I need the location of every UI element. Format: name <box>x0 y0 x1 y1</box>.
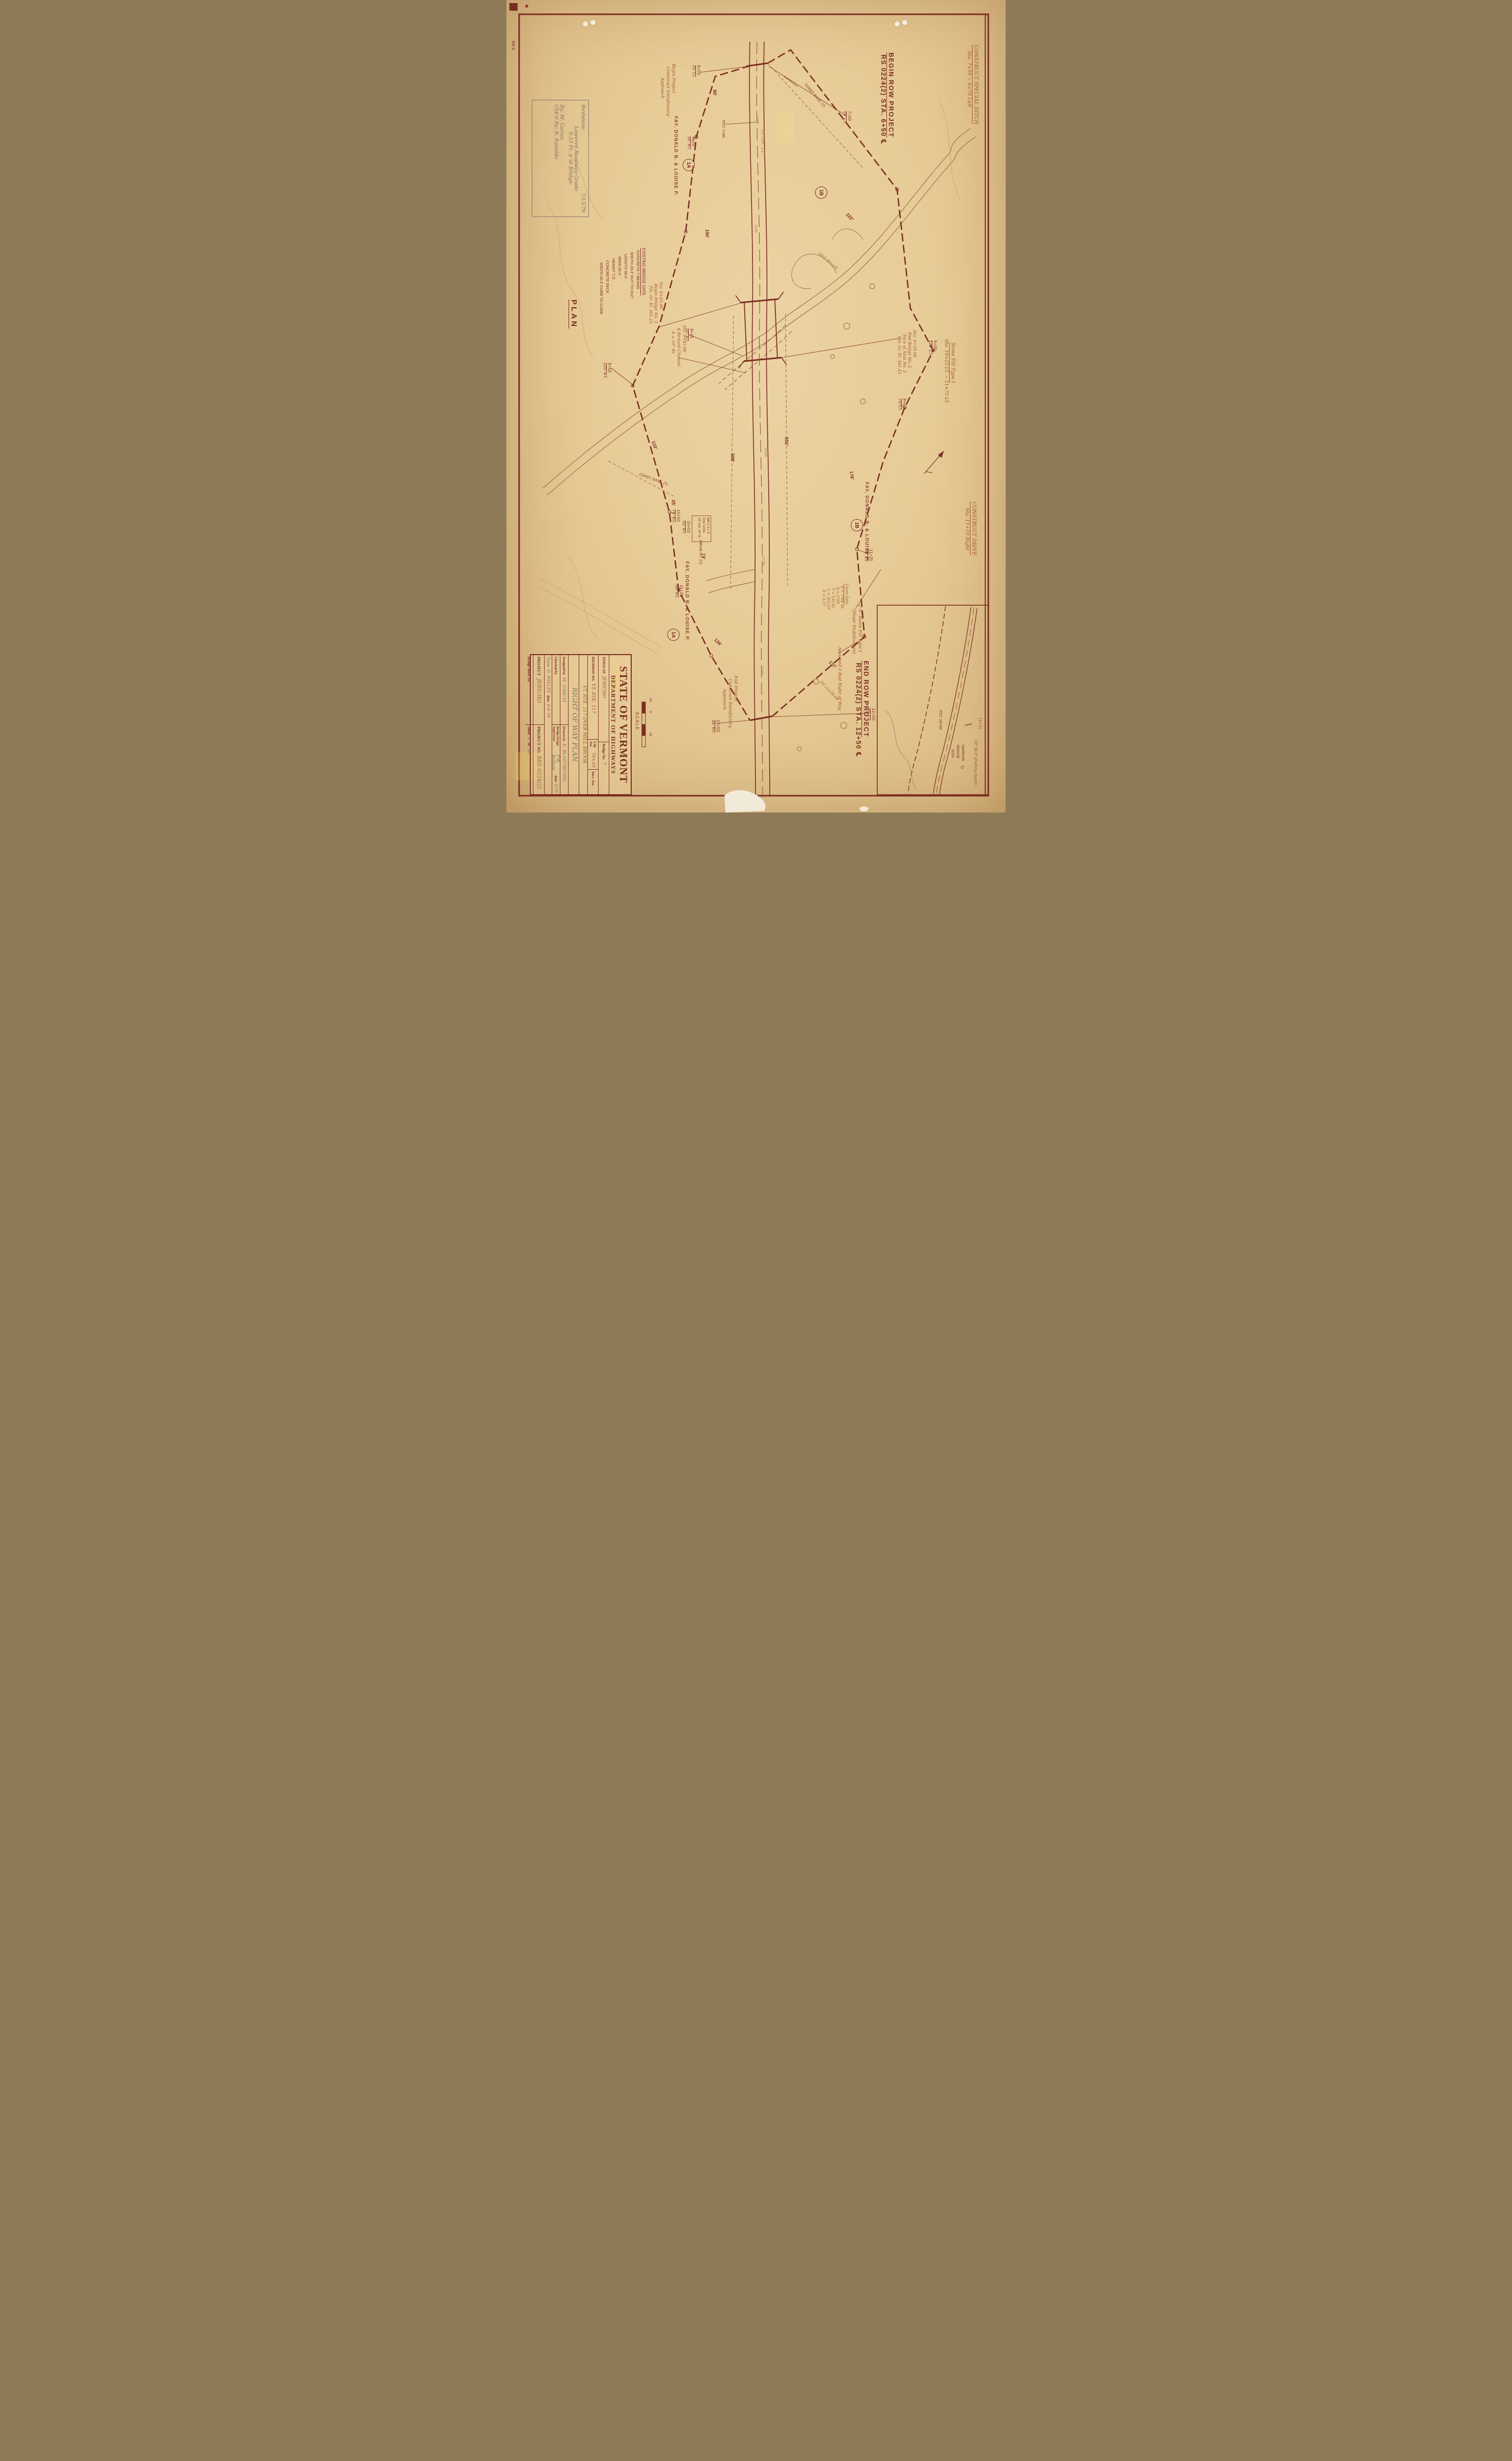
begin-bridge-note: Fin. Gr. El. 301.23 <box>649 286 653 323</box>
dimension-label: 222' <box>845 212 854 222</box>
inset-sign-label: SIGN <box>950 749 954 758</box>
revision-line: 0.33 Ft. ± at Bridge. <box>568 104 573 212</box>
title-block: STATE OF VERMONT DEPARTMENT OF HIGHWAYS … <box>530 654 632 795</box>
torn-paper <box>859 806 869 812</box>
dimension-label: 190' <box>705 229 710 238</box>
town-value: JERICHO <box>601 677 606 698</box>
curve-data-line: D = 2°00' <box>835 587 840 605</box>
end-row-line <box>750 716 772 720</box>
station-offset-label: 9+00120' LT. <box>928 340 937 356</box>
topo-date-label: date <box>546 695 550 702</box>
dimension-label: 137' <box>828 660 838 669</box>
curve-data-line: L = 265.93' <box>826 589 830 610</box>
bridge-no-label: Bridge No. <box>602 744 606 760</box>
begin-row-title: BEGIN ROW PROJECT <box>886 52 895 138</box>
project-label: PROJECT <box>536 657 541 675</box>
owner-name: FAY, DONALD B. & LOUISE P. <box>685 561 690 641</box>
owner-name: FAY, DONALD B. & LOUISE P. <box>673 116 679 196</box>
parcel-badge-1b: 1B <box>851 519 863 531</box>
station-offset-label: 12+5026' RT. <box>711 720 720 734</box>
begin-project-note: Approach <box>659 77 664 99</box>
north-arrow-icon <box>924 451 943 474</box>
benchmark-note-box: BM 2 S.L.F. One Cone 10' Lev. 24' N. <box>692 516 711 542</box>
drawn-by-label: Drawn by <box>562 726 566 742</box>
designed-by-value: M. GARCIA <box>562 677 567 702</box>
drive-note-title: CONSTRUCT DRIVE <box>970 502 977 556</box>
town-label: TOWN OF <box>602 657 606 674</box>
bridge-sheet-label: Bridge Sheet No. <box>527 657 531 682</box>
tape-stain <box>776 111 794 144</box>
centerline-station: 11+00 <box>762 556 765 565</box>
sheet-label: Sheet <box>527 726 531 735</box>
torn-paper <box>724 790 766 813</box>
bridge-no-value: 7 <box>601 762 606 765</box>
begin-bridge-note: Begin Bridge No. 2 <box>654 284 658 323</box>
begin-row-line <box>746 63 768 66</box>
designed-by-label: Designed by <box>562 657 566 675</box>
topo-value: D. WILLEY <box>546 669 551 693</box>
of-label: of <box>527 743 531 746</box>
parcel-badge-1b: 1B <box>815 186 827 199</box>
topo-date-value: 8-4-78 <box>546 704 551 718</box>
curve-data-line: Δ = 7°44' Rt. <box>840 586 844 610</box>
dimension-label: 25' <box>671 500 676 506</box>
topo-label: Topo <box>546 657 551 667</box>
dimension-label: 74' <box>701 553 706 559</box>
dimension-label: 552' <box>784 437 789 446</box>
leader-lines <box>611 66 933 723</box>
revisions-title: Revisions: <box>580 104 586 131</box>
stone-fill-note-title: Stone Fill Type I <box>949 342 956 383</box>
punch-holes <box>583 20 908 27</box>
topo-lines <box>537 102 960 655</box>
plan-sheet: BR 6 BEGIN ROW PROJECT RS 0224(2) STA. 6… <box>506 0 1006 813</box>
revised-channel <box>719 325 792 390</box>
const-ease-label: CONST. EASE. (T) <box>803 83 826 109</box>
end-bridge-note: Sta. 9+19.00 <box>912 330 917 357</box>
station-offset-label: 6+5025' LT. <box>692 65 701 78</box>
checked-by-label: Checked by <box>554 657 558 674</box>
route-label: Vt. Rte. 117 <box>760 129 765 155</box>
centerline-station: 10+00 <box>764 447 767 456</box>
scale-tick: 40 <box>649 698 652 701</box>
parcel-badge-1a: 1A <box>683 159 695 171</box>
revisions-box: Revisions: 7/13/79 Lowered Roadway Grade… <box>532 100 589 217</box>
end-bridge-note: End Bridge No. 2 <box>907 332 912 368</box>
bridge <box>736 292 787 368</box>
parcel-badge-1a: 1A <box>667 629 680 641</box>
inset-rcp-note: 18" RCP (Pulling Apart) <box>973 740 978 786</box>
centerline-station: 8+00 <box>754 225 758 233</box>
highway-no-label: HIGHWAY NO. <box>591 657 595 682</box>
begin-project-note: Construct Satisfactory <box>665 67 670 116</box>
const-ease-lines <box>608 63 863 591</box>
sheet-edge-code: BR 6 <box>511 41 516 50</box>
project-no-value: BRS-0224(2) <box>536 755 542 789</box>
scale-tick: 40 <box>649 733 652 736</box>
bridge-data-line: CONCRETE T-BEAMS <box>635 250 640 289</box>
centerline-station: 7+00 <box>755 116 759 124</box>
ditch-note-title: CONSTRUCT SPECIAL DITCH <box>972 45 979 124</box>
curve-data-line: E = 3.37' <box>822 590 826 607</box>
station-offset-label: 10+5050' RT. <box>682 521 691 534</box>
project-no-label: PROJECT NO. <box>536 726 541 753</box>
stream-label: Mill Brook <box>817 252 839 272</box>
centerline-station: 12+00 <box>760 665 764 674</box>
bridge-data-title: EXISTING BRIDGE DATA <box>640 248 646 295</box>
station-offset-label: 9+50120' RT. <box>603 363 612 379</box>
curve-data-title: Curve Data <box>844 584 849 604</box>
revision-line: Lowered Roadway Grade <box>573 104 579 212</box>
station-offset-label: 12+5024' LT. <box>867 708 876 721</box>
begin-bridge-note: Sta. 8+63.00 <box>659 282 663 309</box>
supervisor-value: F.W. Bolkum <box>552 754 560 774</box>
sheet-title: RIGHT OF WAY PLAN <box>569 655 579 794</box>
station-offset-label: 9+1550' RT. <box>685 329 694 342</box>
supervisor-date-label: date <box>554 775 558 782</box>
end-project-note: Construct Satisfactory <box>727 679 732 728</box>
curve-data-line: T = 135.92' <box>831 588 835 609</box>
scale-tick: 0 <box>649 711 652 713</box>
end-project-note: Approach <box>721 689 726 710</box>
surv-sta-label: Surv. Sta. <box>591 771 595 786</box>
begin-project-note: Begin Project <box>670 64 676 93</box>
supervisor-date-value: 4/79 <box>554 783 558 793</box>
dimension-label: 110' <box>651 440 658 450</box>
end-row-station: RS 0224(2) STA. 12+50 ℄ <box>854 663 862 757</box>
drive <box>706 570 754 593</box>
const-ease-label: CONST. EASE. (T) <box>638 473 668 487</box>
pot-label: POT 7+00 <box>721 120 725 138</box>
bridge-data-line: LENGTH 56.0' <box>623 254 628 279</box>
corner-mark <box>509 3 518 11</box>
benchmark-line: BM 2 S.L.F. <box>706 518 710 540</box>
bridge-data-line: WIDTH 23.4' OUT TO OUT <box>629 252 634 299</box>
slope-fill-note: 2'-0" Stone Fill Type I <box>857 604 862 652</box>
dimension-label: 598' <box>730 453 735 462</box>
plan-title: PLAN <box>569 300 578 329</box>
benchmark-line: 10' Lev. 24' N. <box>697 518 701 540</box>
feature-crossed: VT. RTE. 117 OVER MILL BROOK <box>579 655 587 794</box>
inset-sign-label: BRIDGE <box>955 745 959 759</box>
revision-checked: Chk'd By: R. Ranaldo <box>553 104 559 212</box>
inset-sign-label: NARROW <box>960 745 964 761</box>
drawn-by-value: E. BLATCHFORD <box>562 744 567 782</box>
slope-fill-note: (Slope Stabilization) <box>851 609 856 654</box>
agency-name: STATE OF VERMONT <box>617 655 631 794</box>
station-offset-label: 7+0025' LT. <box>843 111 852 124</box>
property-pins <box>631 135 935 657</box>
supervisor-label: Bridge Design Supervisor <box>553 726 560 753</box>
log-sta-value: 70+10 <box>590 752 596 767</box>
highway-no-value: VT. RTE. 117 <box>590 684 596 714</box>
bridge-data-line: HEIGHT 7.5' <box>611 258 615 280</box>
station-offset-label: 10+5075' RT. <box>671 509 681 523</box>
agency-department: DEPARTMENT OF HIGHWAYS <box>609 655 617 794</box>
drive-note-sta: Sta. 11+10 Right <box>964 508 969 550</box>
station-offset-label: 6+2550' RT. <box>687 137 696 150</box>
end-row-title: END ROW PROJECT <box>861 661 870 737</box>
revision-by: By: M. Garcia <box>559 104 564 212</box>
bridge-data-line: CONCRETE DECK <box>605 260 609 293</box>
end-project-note: End Project <box>733 675 738 701</box>
station-offset-label: 9+5075' LT. <box>898 398 907 412</box>
end-bridge-note: Face of Abut No. 2 <box>902 334 907 373</box>
bridge-data-line: WIDTH 20.3' CURB TO CURB <box>599 262 603 314</box>
stone-fill-note-sta: Sta. 10+25 LT. ~ 11+75 LT. <box>943 339 949 403</box>
begin-row-station: RS 0224(2) STA. 6+50 ℄ <box>879 55 887 145</box>
pot-label: POT 15+00 <box>938 710 942 729</box>
benchmark-line: One Cone <box>701 518 705 540</box>
ditch-note-sta: Sta. 7+50 ~ 8+70 Left <box>966 51 971 107</box>
inset-station-tick: 14+52 <box>978 717 982 729</box>
dimension-label: 178' <box>849 471 855 480</box>
dimension-label: 80' <box>712 90 717 96</box>
inset-box <box>877 605 988 795</box>
drive-rt-label: DRIVE RT. (T) <box>698 540 703 564</box>
scale-label: SCALE <box>635 712 639 731</box>
revised-channel-note: Δ = 55° Rt. <box>671 331 676 355</box>
sheet-total: 38 <box>527 748 532 754</box>
log-sta-label: Log Sta. <box>589 741 597 750</box>
mill-brook <box>543 128 976 495</box>
station-offset-label: 11+2550' RT. <box>674 585 684 599</box>
revised-channel-note: ℄ Revised Channel <box>677 328 681 367</box>
bridge-data-line: SPAN 50.0' <box>617 256 622 276</box>
sheet-no: 4 <box>527 737 532 740</box>
scale-bar <box>642 702 645 747</box>
revision-date: 7/13/79 <box>580 193 586 212</box>
project-value: JERICHO <box>536 679 542 702</box>
dimension-label: 126' <box>713 637 723 647</box>
end-bridge-note: Fin. Gr. El. 301.43 <box>897 336 902 374</box>
station-offset-label: 11+2575' LT. <box>864 549 873 562</box>
